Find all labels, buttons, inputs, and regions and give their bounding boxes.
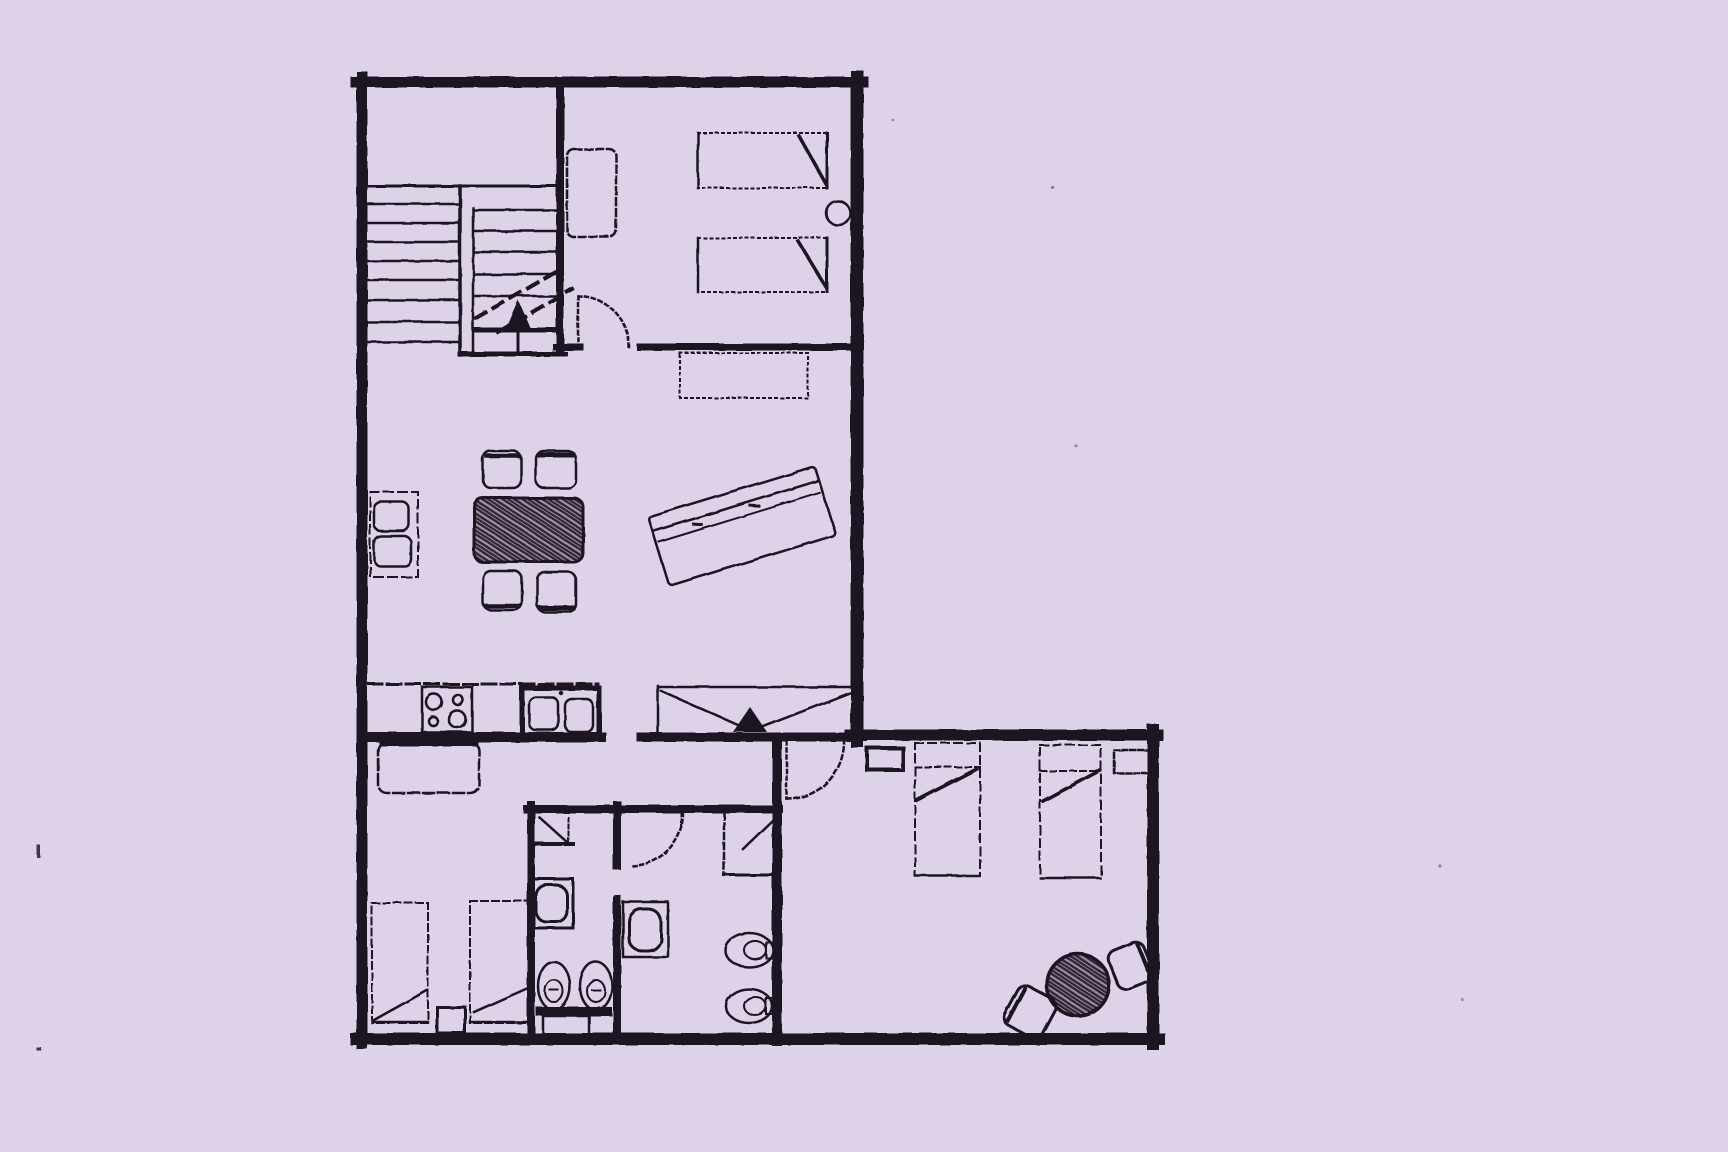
bench-seat-1 bbox=[374, 502, 409, 531]
bench-seat-2 bbox=[374, 536, 411, 566]
nightstand bbox=[1114, 750, 1151, 773]
basin-bowl bbox=[536, 885, 567, 922]
speck-3 bbox=[1438, 864, 1441, 867]
bedroom-lower-left bbox=[372, 901, 530, 1033]
bed-1 bbox=[372, 903, 428, 1023]
dining-chair-bottom-left bbox=[483, 571, 522, 610]
toilet-2 bbox=[580, 962, 612, 1010]
left-margin-tick-upper bbox=[37, 845, 41, 858]
washbasin bbox=[623, 902, 668, 957]
speck-5 bbox=[892, 119, 895, 122]
sofa bbox=[648, 466, 835, 586]
stair-up-arrow bbox=[504, 300, 532, 332]
sofa-back-line-2 bbox=[659, 493, 820, 542]
double-sink-unit bbox=[522, 688, 599, 735]
bedroom-upper-door bbox=[578, 296, 629, 347]
nightstand bbox=[437, 1007, 465, 1033]
door-swing-arc bbox=[630, 813, 683, 866]
dining-chair-top-left bbox=[483, 451, 521, 488]
bedroom-upper-right bbox=[567, 133, 850, 347]
sink-basin-1 bbox=[529, 697, 558, 730]
toilet-base-strip bbox=[536, 1007, 612, 1016]
sink-tap bbox=[559, 691, 563, 695]
left-margin-tick-lower bbox=[36, 1047, 41, 1050]
burner-large-2 bbox=[449, 711, 466, 728]
burner-small-2 bbox=[429, 717, 438, 726]
bed-pillow-diagonal bbox=[798, 241, 826, 287]
toilet-1 bbox=[725, 933, 775, 967]
door-swing-arc bbox=[787, 742, 844, 799]
dining-chair-top-right bbox=[536, 451, 576, 488]
island-table bbox=[378, 742, 479, 793]
floor-plan-scan bbox=[0, 0, 1728, 1152]
bedroom-lower-right bbox=[867, 743, 1156, 1041]
living-dining bbox=[370, 353, 836, 612]
wall-shelf bbox=[867, 748, 903, 770]
bedroom-lower-right-door bbox=[787, 742, 844, 799]
entrance bbox=[658, 686, 858, 799]
burner-large-1 bbox=[426, 694, 442, 710]
bed-pillow-diagonal bbox=[799, 136, 826, 184]
staircase-left-flight bbox=[366, 204, 458, 342]
washbasin bbox=[530, 879, 573, 928]
dining-chair-bottom-right bbox=[537, 572, 576, 612]
toilet-2 bbox=[726, 989, 775, 1023]
basin-bowl bbox=[629, 909, 661, 951]
bed-pillow-diagonal bbox=[474, 988, 528, 1012]
door-swing-arc bbox=[578, 296, 629, 347]
shower-cabin bbox=[724, 813, 777, 875]
wardrobe bbox=[567, 149, 616, 237]
twin-bed-1 bbox=[698, 133, 827, 188]
sofa-back-line-1 bbox=[655, 481, 818, 531]
stairwell bbox=[366, 186, 572, 355]
entry-arrow-head bbox=[733, 707, 767, 732]
cooktop bbox=[422, 687, 472, 732]
speck-4 bbox=[1460, 997, 1463, 1000]
burner-small-1 bbox=[453, 695, 463, 705]
bed-pillow-diagonal bbox=[1043, 771, 1099, 801]
bathroom-right bbox=[623, 813, 777, 1023]
round-wall-item bbox=[826, 201, 850, 225]
bed-2 bbox=[1040, 745, 1101, 878]
bed-pillow-diagonal bbox=[917, 769, 977, 800]
floor-plan-drawing bbox=[0, 0, 1728, 1152]
v-line-left bbox=[661, 691, 747, 729]
bed-1 bbox=[915, 743, 980, 876]
bed-pillow-diagonal bbox=[374, 991, 426, 1020]
speck-1 bbox=[1051, 186, 1054, 189]
toilet-1 bbox=[538, 962, 570, 1010]
speck-2 bbox=[1074, 444, 1077, 447]
bathroom-left bbox=[530, 817, 612, 1037]
sink-basin-2 bbox=[565, 699, 593, 732]
dining-table-scribble bbox=[474, 498, 583, 562]
bed-2 bbox=[470, 901, 530, 1023]
twin-bed-2 bbox=[698, 238, 827, 292]
v-line-right bbox=[757, 691, 855, 729]
sideboard bbox=[680, 353, 808, 398]
scan-artifacts bbox=[36, 119, 1464, 1050]
corner-shower bbox=[531, 817, 573, 844]
